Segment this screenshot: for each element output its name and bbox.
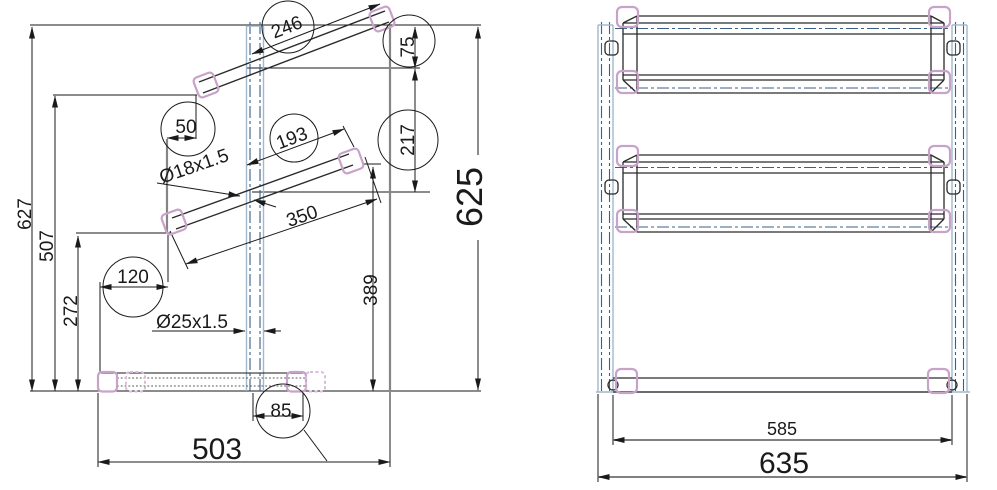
rail1-right-pivot-knob [947,41,960,55]
dim-label-627: 627 [15,198,36,230]
dim-label-625: 625 [449,167,490,227]
dim-label-246: 246 [268,12,305,43]
balloon-85-leader [304,430,327,461]
dim-label-585: 585 [767,419,797,439]
dim-label-120: 120 [117,267,149,288]
rail2-left-pivot-knob [605,180,618,194]
rail2-left-top-diag [623,155,637,162]
dim-label-503: 503 [192,433,242,466]
rail1-left-pivot-knob [605,41,618,55]
leader-tube18-opposite [254,200,276,207]
side-view: 627 507 272 120 50 246 75 217 193 350 38… [15,1,490,467]
rail-cap-left-solid [98,372,117,392]
rail1-cap-bottom-left [617,71,638,93]
dim-label-193: 193 [274,123,311,154]
technical-drawing-canvas: 627 507 272 120 50 246 75 217 193 350 38… [0,0,997,490]
rail2-cap-bottom-left [617,210,638,232]
dim-label-507: 507 [37,230,58,262]
rail2-left-bottom-diag [623,219,637,232]
side-post [246,22,264,393]
rail-frame-2 [605,146,960,232]
rail-cap-right-dashed [306,372,325,392]
dim-label-389: 389 [361,274,382,306]
front-posts [596,22,970,394]
dim-label-50: 50 [175,117,196,138]
dim-label-272: 272 [61,295,82,327]
front-view: 585 635 [596,7,970,482]
rail-cap-left-dashed [126,372,145,392]
rail2-cap-bottom-right [929,210,950,232]
front-bottom-bar [608,369,957,393]
rail-cap-right-solid [287,372,306,392]
side-bottom-rail [98,372,325,392]
rail-frame-1 [605,7,960,93]
rail1-left-top-diag [623,16,637,23]
ext-line-193 [343,126,354,147]
front-dimensions: 585 635 [598,394,967,482]
dim-line-350 [186,199,377,264]
lower-tube-end-cap-high [338,148,365,175]
rail1-right-top-diag [931,16,944,23]
dim-label-350: 350 [284,202,321,232]
bottom-bar-cap-left [616,369,637,393]
rail2-right-top-diag [931,155,944,162]
label-tube25: Ø25x1.5 [156,312,228,333]
dim-label-217: 217 [398,124,419,156]
rail2-right-pivot-knob [947,180,960,194]
dim-label-85: 85 [270,401,291,422]
dim-label-75: 75 [398,36,419,57]
rail1-left-bottom-diag [623,80,637,93]
bottom-bar-cap-right [928,369,949,393]
rail2-right-bottom-diag [931,219,944,232]
rail1-cap-bottom-right [929,71,950,93]
rail1-right-bottom-diag [931,80,944,93]
side-extension-lines [30,25,481,467]
drawing-svg: 627 507 272 120 50 246 75 217 193 350 38… [0,0,997,490]
ext-line-350-low [170,231,188,269]
dim-label-635: 635 [759,447,809,480]
lower-tube-end-cap-low [161,209,188,236]
